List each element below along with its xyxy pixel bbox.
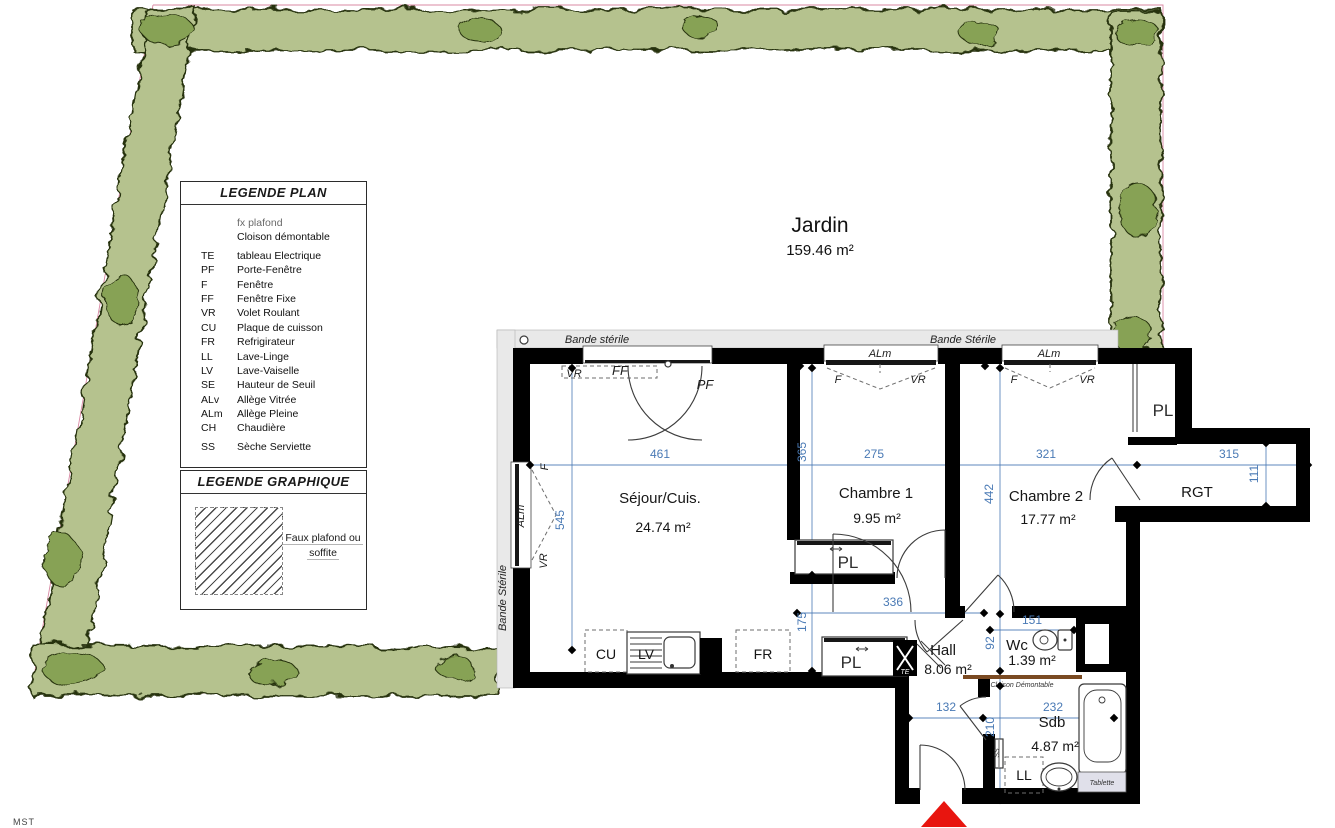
hedge-top xyxy=(132,10,1162,50)
dim-545: 545 xyxy=(553,510,567,530)
wall-segment xyxy=(1128,437,1177,445)
legend-item: TEtableau Electrique xyxy=(181,250,366,264)
dim-336: 336 xyxy=(883,595,903,609)
toilet-bowl xyxy=(1033,630,1057,650)
basin-drain-dot xyxy=(1058,788,1061,791)
wall-segment xyxy=(1098,348,1192,364)
wall-segment xyxy=(945,606,965,618)
room-sdb-name: Sdb xyxy=(1039,714,1066,731)
wall-segment xyxy=(938,348,1002,364)
wall-segment xyxy=(513,348,530,464)
door-chambre2 xyxy=(965,575,1014,612)
sterile-bands: Bande stérile Bande Stérile Bande Stéril… xyxy=(497,330,1118,688)
alm-label: ALm xyxy=(1037,348,1061,360)
faucet-dot xyxy=(670,664,674,668)
wall-segment xyxy=(1126,664,1140,804)
legend-item: CHChaudière xyxy=(181,422,366,436)
dim-210: 210 xyxy=(983,717,997,737)
entrance-arrow-icon xyxy=(921,801,967,827)
wall-segment xyxy=(1115,506,1310,522)
floor-plan-page: Bande stérile Bande Stérile Bande Stéril… xyxy=(0,0,1335,828)
cu-label: CU xyxy=(596,646,616,662)
wall-segment xyxy=(712,348,824,364)
legend-graphique-box: LEGENDE GRAPHIQUE Faux plafond ou soffit… xyxy=(180,470,367,610)
hedge-right xyxy=(1111,12,1161,350)
dim-175: 175 xyxy=(795,612,809,632)
room-chambre2-area: 17.77 m² xyxy=(1020,511,1076,527)
kitchen-fixtures: CU LV FR xyxy=(585,630,790,674)
ss-label: SS xyxy=(994,748,1001,758)
wall-segment xyxy=(945,364,960,606)
band-label-left: Bande Stérile xyxy=(497,565,509,631)
room-rgt-name: RGT xyxy=(1181,484,1213,501)
dim-92: 92 xyxy=(983,636,997,650)
cloison-line xyxy=(963,675,1082,679)
vr-label: VR xyxy=(538,553,550,568)
legend-item: FRRefrigirateur xyxy=(181,336,366,350)
dim-132: 132 xyxy=(936,700,956,714)
door-rgt xyxy=(1090,458,1140,500)
band-label-top-right: Bande Stérile xyxy=(930,334,996,346)
hedge-bush xyxy=(460,18,500,42)
hedge-left-diagonal xyxy=(32,8,196,692)
legend-item: FFenêtre xyxy=(181,279,366,293)
f-label: F xyxy=(1011,374,1019,386)
alm-label: ALm xyxy=(868,348,892,360)
hedge-bush xyxy=(247,659,297,685)
hedge-bush xyxy=(44,534,80,586)
lv-label: LV xyxy=(638,646,655,662)
legend-item: CUPlaque de cuisson xyxy=(181,322,366,336)
door-entrance xyxy=(920,745,965,790)
hedge-bush xyxy=(105,275,139,325)
dim-151: 151 xyxy=(1022,613,1042,627)
hatch-sample-icon xyxy=(195,507,283,595)
window-frame xyxy=(826,360,936,365)
room-hall-name: Hall xyxy=(930,642,956,659)
ff-label: FF xyxy=(612,363,629,378)
shaft-void xyxy=(1085,624,1109,664)
wall-segment xyxy=(1177,428,1310,444)
legend-item: SEHauteur de Seuil xyxy=(181,379,366,393)
dim-315: 315 xyxy=(1219,447,1239,461)
hatch-label: Faux plafond ou soffite xyxy=(283,531,363,561)
garden-name: Jardin xyxy=(738,214,902,238)
fr-label: FR xyxy=(754,646,773,662)
survey-point-icon xyxy=(520,336,528,344)
ll-label: LL xyxy=(1016,767,1032,783)
window-frame xyxy=(585,360,710,363)
f-label: F xyxy=(835,374,843,386)
legend-item: ALmAllège Pleine xyxy=(181,408,366,422)
tablette-label: Tablette xyxy=(1090,780,1115,787)
dim-442: 442 xyxy=(982,484,996,504)
legend-item: FFFenêtre Fixe xyxy=(181,293,366,307)
dim-232: 232 xyxy=(1043,700,1063,714)
hedge-bush xyxy=(682,15,718,37)
pl-label: PL xyxy=(838,553,859,572)
sliding-door xyxy=(797,541,891,545)
tank-dot xyxy=(1064,639,1067,642)
f-label: F xyxy=(539,462,551,470)
duct-block xyxy=(700,638,722,674)
room-wc-area: 1.39 m² xyxy=(1008,652,1056,668)
edge-fragment-text: MST xyxy=(13,817,35,827)
wc-fixtures xyxy=(1033,630,1072,650)
dim-275: 275 xyxy=(864,447,884,461)
hedge-bush xyxy=(1114,18,1158,46)
wall-segment xyxy=(513,566,530,688)
hedge-bush xyxy=(142,15,194,45)
legend-item: Cloison démontable xyxy=(181,231,366,245)
vr-label: VR xyxy=(910,374,925,386)
hedge-bush xyxy=(960,21,1000,45)
hedge-bush xyxy=(1113,317,1153,353)
hedge-bush xyxy=(1119,183,1157,237)
legend-item: fx plafond xyxy=(181,217,366,231)
room-sejour-area: 24.74 m² xyxy=(635,519,691,535)
porte-fenetre-swing xyxy=(628,366,702,440)
pl-label: PL xyxy=(1153,401,1174,420)
legend-plan-box: LEGENDE PLAN fx plafond Cloison démontab… xyxy=(180,181,367,468)
legend-item: LLLave-Linge xyxy=(181,351,366,365)
legend-item: LVLave-Vaiselle xyxy=(181,365,366,379)
dim-111: 111 xyxy=(1247,465,1261,484)
band-label-top-left: Bande stérile xyxy=(565,334,629,346)
legend-item: VRVolet Roulant xyxy=(181,307,366,321)
walls xyxy=(513,348,1310,804)
hedge-bush xyxy=(42,651,102,685)
legend-item: PFPorte-Fenêtre xyxy=(181,264,366,278)
legend-plan-title: LEGENDE PLAN xyxy=(181,182,366,205)
hedge-bush xyxy=(437,656,473,680)
wall-segment xyxy=(983,734,995,790)
pf-label: PF xyxy=(697,377,715,392)
garden-label: Jardin 159.46 m² xyxy=(738,214,902,259)
wall-segment xyxy=(978,677,990,697)
wall-segment xyxy=(895,788,920,804)
room-chambre2-name: Chambre 2 xyxy=(1009,488,1083,505)
dim-365: 365 xyxy=(795,442,809,462)
bathtub xyxy=(1079,684,1126,774)
room-sdb-area: 4.87 m² xyxy=(1031,738,1079,754)
legend-graphique-title: LEGENDE GRAPHIQUE xyxy=(181,471,366,494)
room-hall-area: 8.06 m² xyxy=(924,661,972,677)
window-pivot-icon xyxy=(665,361,671,367)
sliding-door xyxy=(824,638,905,642)
legend-plan-body: fx plafond Cloison démontable TEtableau … xyxy=(181,205,366,455)
dim-321: 321 xyxy=(1036,447,1056,461)
pl-label: PL xyxy=(841,653,862,672)
vr-label: VR xyxy=(1079,374,1094,386)
door-chambre1 xyxy=(897,530,945,578)
room-sejour-name: Séjour/Cuis. xyxy=(619,490,701,507)
dim-461: 461 xyxy=(650,447,670,461)
legend-item: ALvAllège Vitrée xyxy=(181,394,366,408)
kitchen-sink xyxy=(664,637,695,668)
te-label: TE xyxy=(901,669,910,676)
alm-label: ALm xyxy=(515,505,527,529)
room-chambre1-name: Chambre 1 xyxy=(839,485,913,502)
legend-item: SSSèche Serviette xyxy=(181,441,366,455)
room-chambre1-area: 9.95 m² xyxy=(853,510,901,526)
garden-area: 159.46 m² xyxy=(738,242,902,259)
wall-segment xyxy=(1126,522,1140,614)
